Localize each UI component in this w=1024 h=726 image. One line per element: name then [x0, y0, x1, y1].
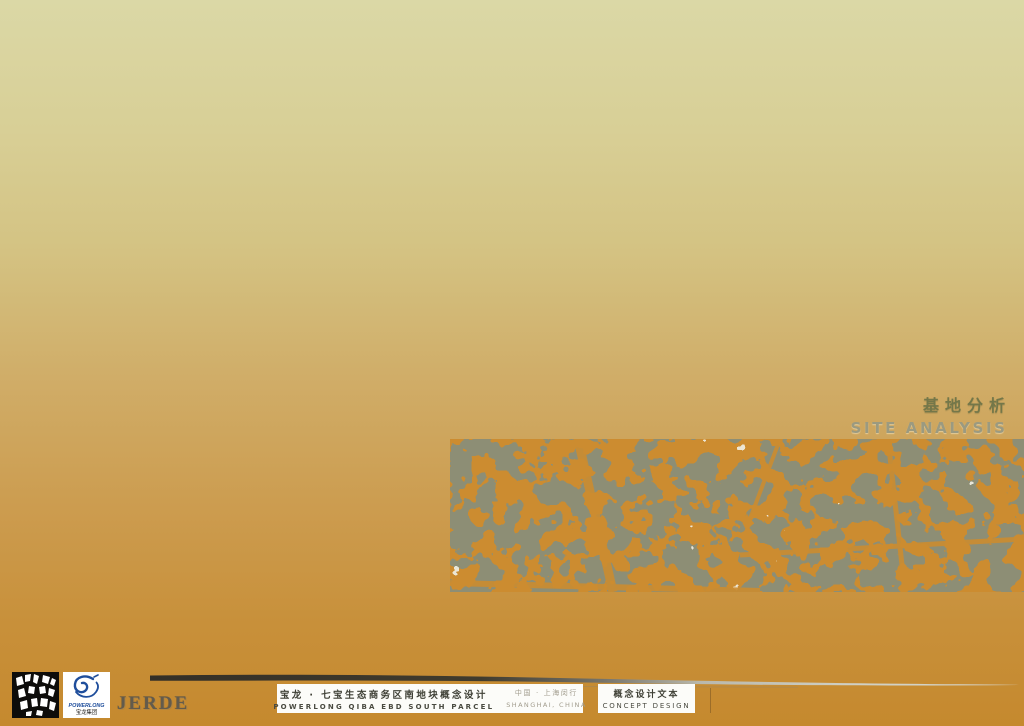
section-title-en: SITE ANALYSIS [851, 419, 1008, 437]
section-title: 基地分析 SITE ANALYSIS [851, 392, 1005, 437]
slide-canvas: 基地分析 SITE ANALYSIS [0, 0, 1024, 726]
jerde-mosaic-icon [12, 672, 59, 718]
footer-vertical-divider [710, 688, 711, 713]
aerial-map-graphic [450, 439, 1024, 592]
document-type-box: 概念设计文本 CONCEPT DESIGN [598, 684, 695, 713]
project-title-en: POWERLONG QIBA EBD SOUTH PARCEL [273, 703, 494, 711]
jerde-wordmark: JERDE [117, 693, 189, 715]
powerlong-logo: POWERLONG 宝龙集团 [63, 672, 110, 718]
powerlong-cn-label: 宝龙集团 [76, 708, 98, 716]
project-location-column: 中国 · 上海闵行 SHANGHAI, CHINA [506, 688, 586, 709]
powerlong-dragon-icon: POWERLONG 宝龙集团 [63, 672, 110, 718]
section-title-cn: 基地分析 [851, 392, 1011, 416]
document-label-en: CONCEPT DESIGN [603, 702, 691, 710]
project-name-column: 宝龙 · 七宝生态商务区南地块概念设计 POWERLONG QIBA EBD S… [273, 687, 494, 711]
jerde-mosaic-logo-icon [12, 672, 59, 718]
powerlong-wordmark: POWERLONG [69, 703, 106, 709]
site-aerial-image [450, 439, 1024, 592]
project-location-en: SHANGHAI, CHINA [506, 701, 586, 709]
project-title-cn: 宝龙 · 七宝生态商务区南地块概念设计 [280, 687, 488, 701]
document-label-cn: 概念设计文本 [613, 687, 679, 700]
project-info-box: 宝龙 · 七宝生态商务区南地块概念设计 POWERLONG QIBA EBD S… [277, 684, 583, 713]
project-location-cn: 中国 · 上海闵行 [515, 688, 578, 698]
map-highlight-texture [450, 439, 1024, 592]
